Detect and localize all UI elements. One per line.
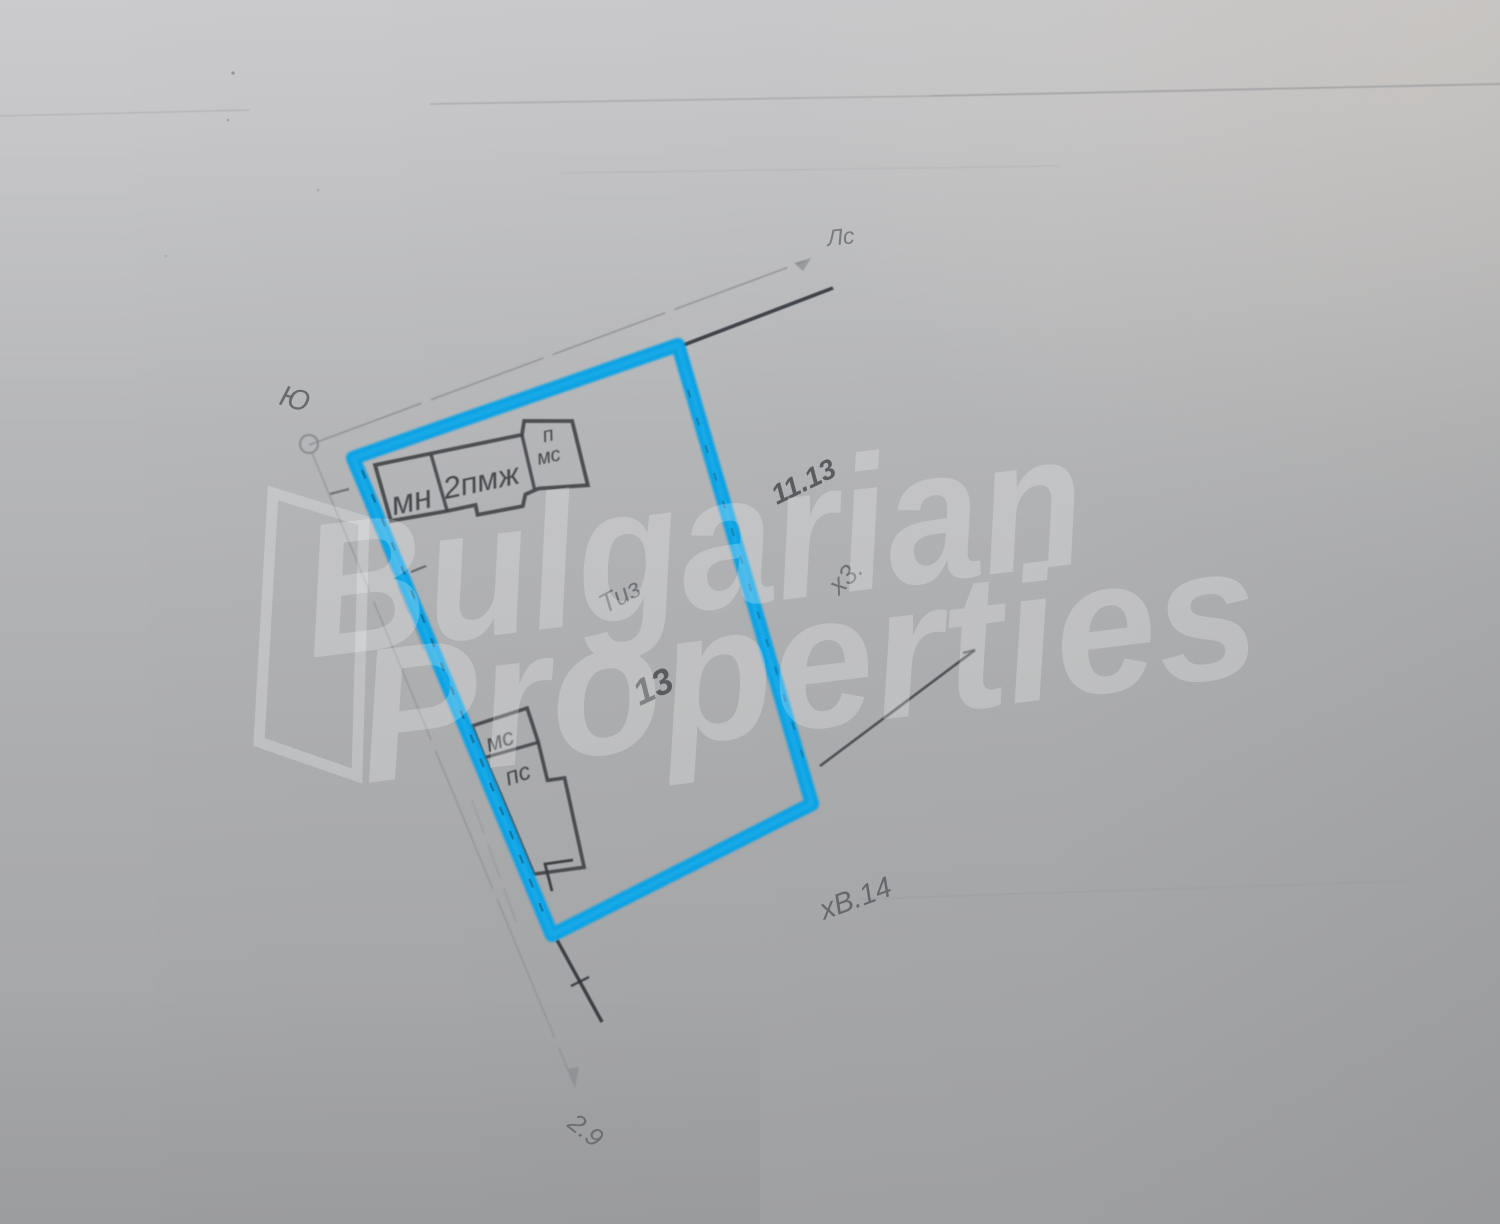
svg-text:Лс: Лс <box>824 222 856 251</box>
